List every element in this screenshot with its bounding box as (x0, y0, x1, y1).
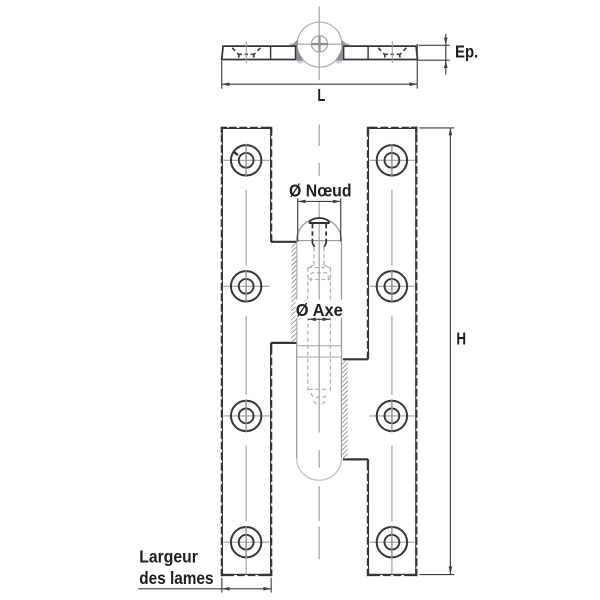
svg-text:Largeur: Largeur (139, 547, 198, 567)
svg-text:L: L (317, 85, 325, 105)
svg-text:des lames: des lames (139, 568, 213, 588)
svg-text:H: H (456, 329, 466, 349)
svg-text:Ø Nœud: Ø Nœud (289, 181, 352, 201)
svg-text:Ep.: Ep. (455, 42, 478, 62)
svg-text:Ø Axe: Ø Axe (296, 300, 343, 320)
